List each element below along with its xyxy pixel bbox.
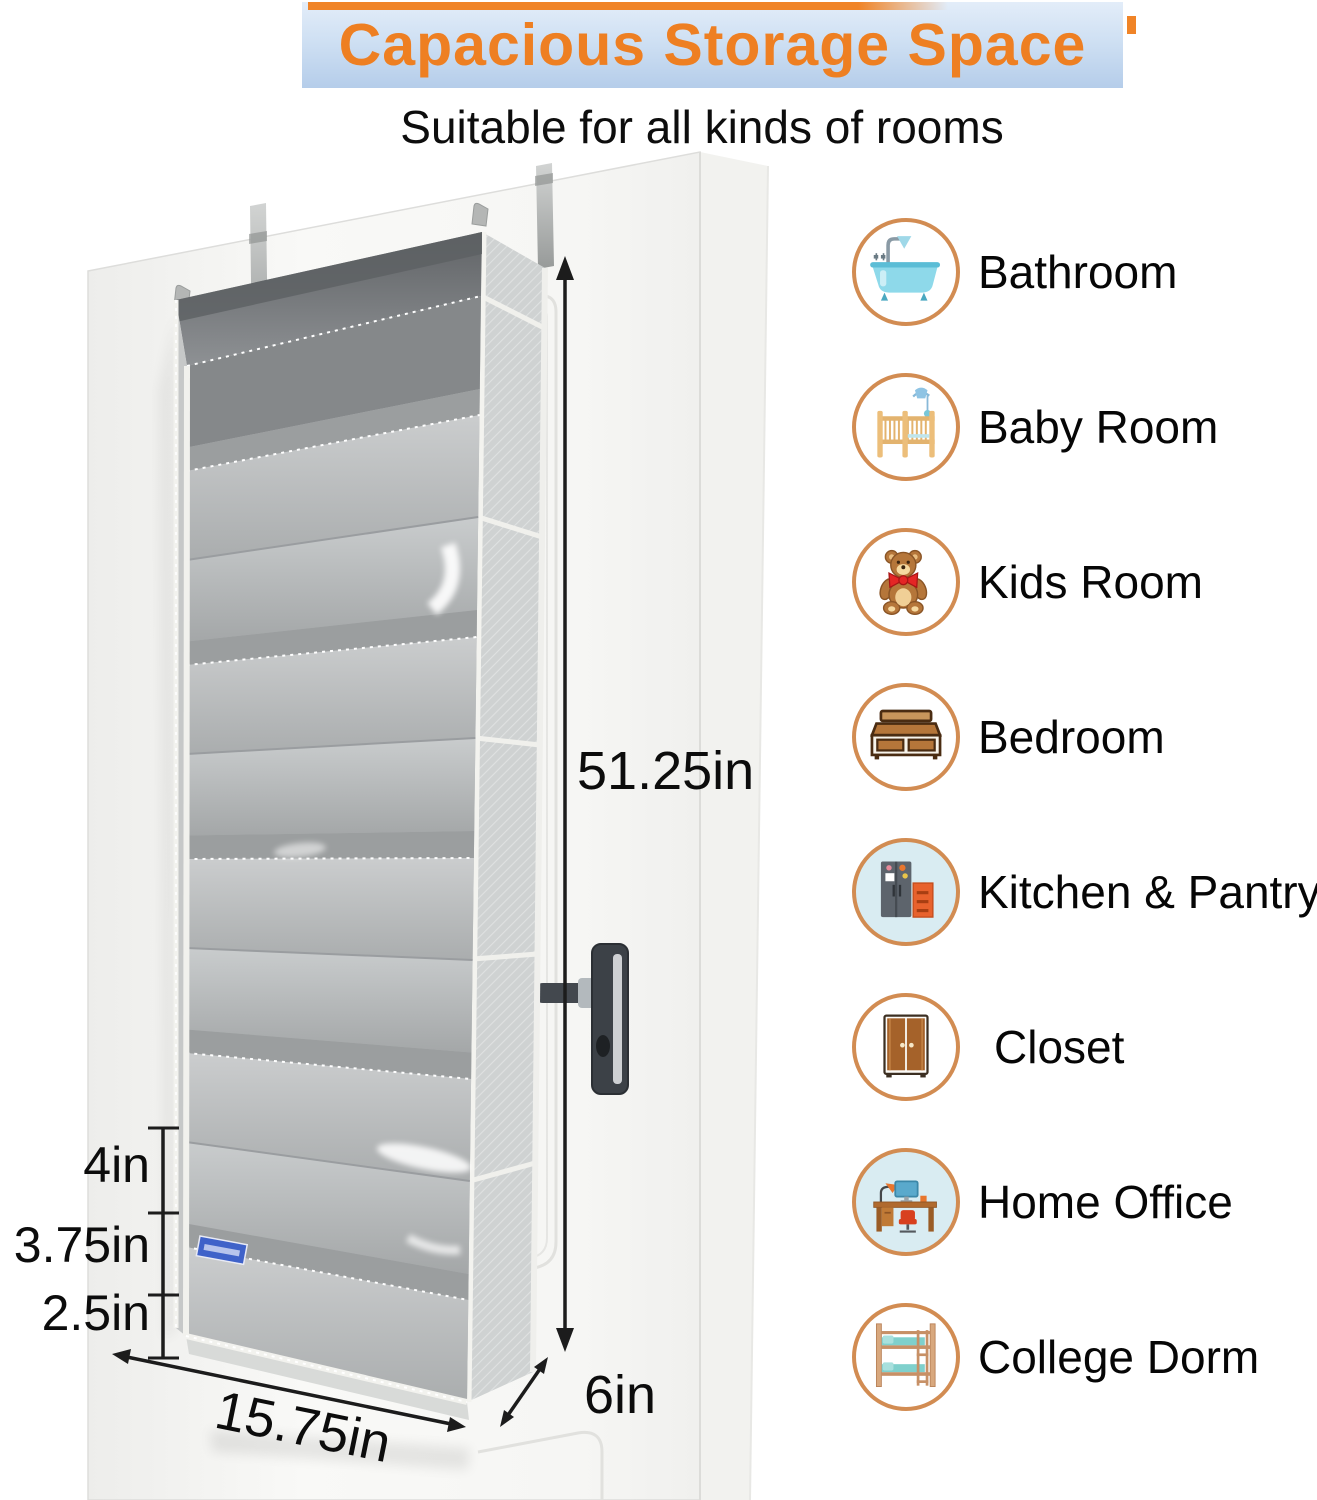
left-side-panel (176, 300, 187, 1336)
pocket-bottom-dimension-label: 2.5in (24, 1286, 150, 1341)
room-label: Kitchen & Pantry (978, 865, 1317, 919)
pocket (186, 858, 474, 960)
pocket-top-dimension-label: 4in (46, 1138, 150, 1193)
room-item-baby-room: Baby Room (852, 373, 1312, 481)
room-item-bedroom: Bedroom (852, 683, 1312, 791)
pocket-middle-dimension-label: 3.75in (12, 1218, 150, 1273)
title-banner: Capacious Storage Space (302, 2, 1123, 88)
room-item-closet: Closet (852, 993, 1312, 1101)
compartment-window (187, 738, 476, 836)
room-label: Bathroom (978, 245, 1177, 299)
height-dimension-label: 51.25in (577, 742, 754, 801)
desk-icon (852, 1148, 960, 1256)
crib-icon (852, 373, 960, 481)
room-item-bathroom: Bathroom (852, 218, 1312, 326)
room-item-college-dorm: College Dorm (852, 1303, 1312, 1411)
bed-icon (852, 683, 960, 791)
room-label: College Dorm (978, 1330, 1259, 1384)
room-label: Kids Room (978, 555, 1203, 609)
room-label: Home Office (978, 1175, 1233, 1229)
banner-accent-tick (1127, 16, 1136, 34)
refrigerator-icon (852, 838, 960, 946)
door-edge (700, 152, 768, 1500)
hanging-organizer (158, 232, 545, 1470)
room-item-kitchen: Kitchen & Pantry (852, 838, 1312, 946)
room-item-kids-room: Kids Room (852, 528, 1312, 636)
organizer-front-face (186, 296, 481, 1402)
bunk-bed-icon (852, 1303, 960, 1411)
banner-accent-line (308, 2, 948, 10)
depth-dimension-label: 6in (584, 1366, 656, 1425)
room-legend: Bathroom (852, 218, 1312, 1411)
handle-backplate (592, 944, 628, 1094)
room-label: Bedroom (978, 710, 1165, 764)
wardrobe-icon (852, 993, 960, 1101)
room-item-home-office: Home Office (852, 1148, 1312, 1256)
room-label: Baby Room (978, 400, 1218, 454)
teddy-bear-icon (852, 528, 960, 636)
room-label: Closet (994, 1020, 1124, 1074)
page-title: Capacious Storage Space (339, 11, 1087, 79)
bathtub-icon (852, 218, 960, 326)
keyhole (596, 1035, 610, 1057)
